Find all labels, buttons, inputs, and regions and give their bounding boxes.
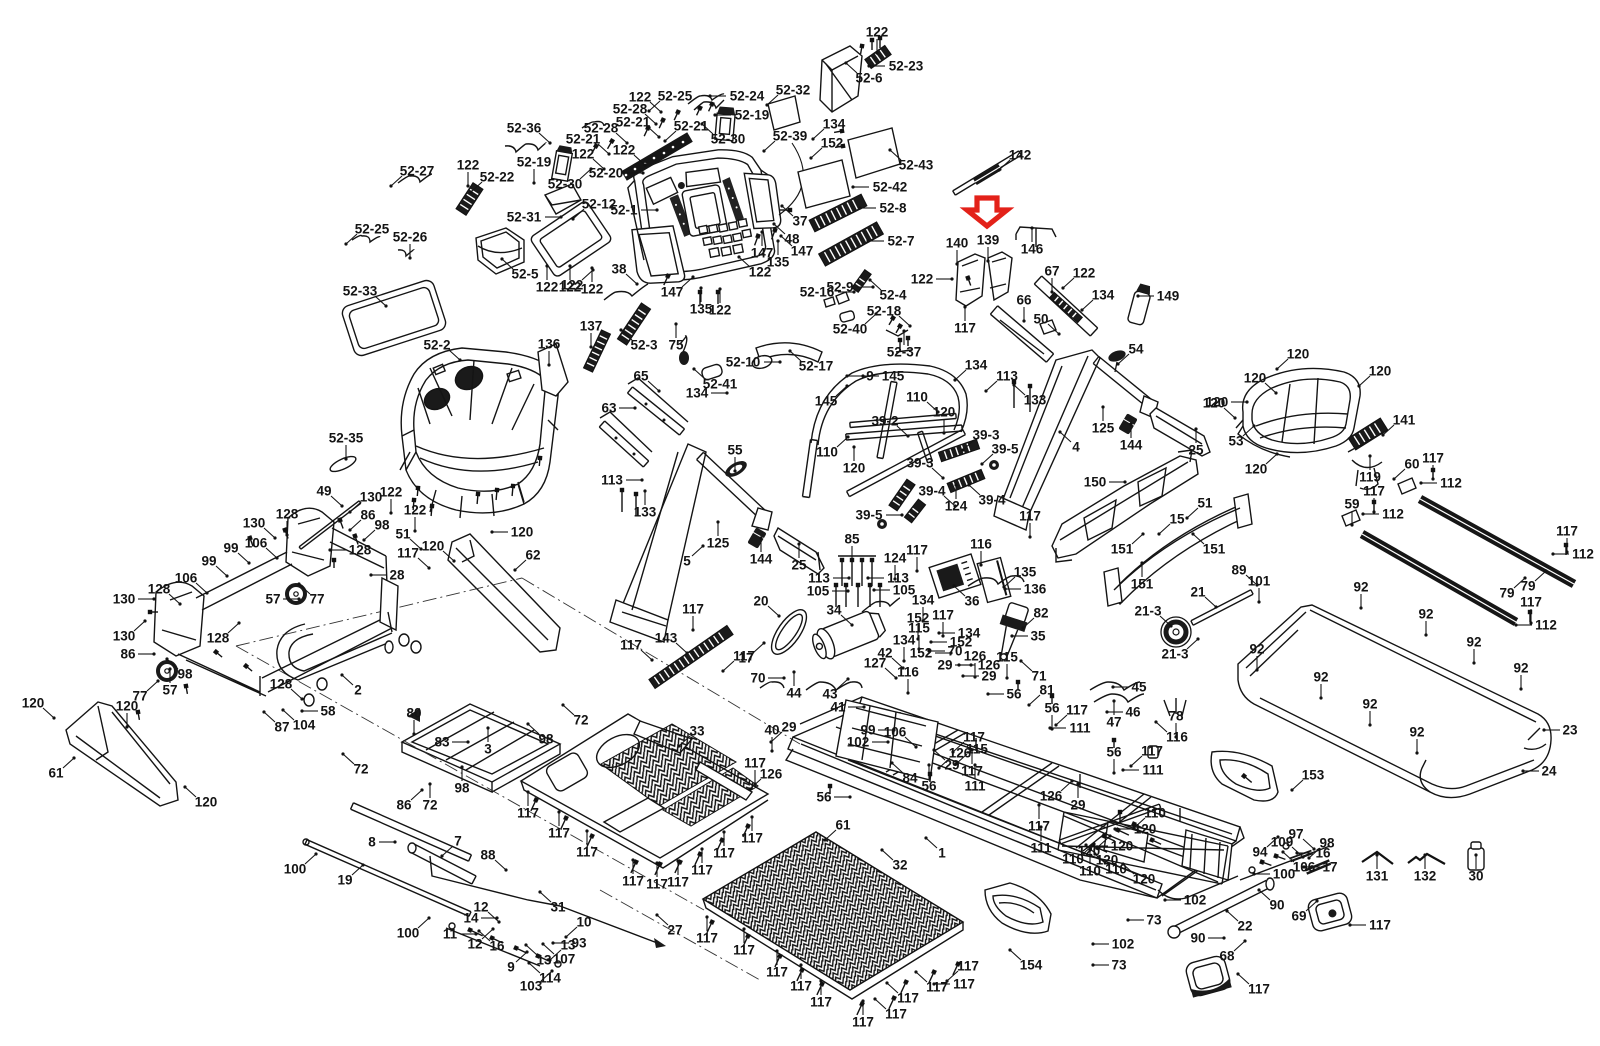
- svg-text:147: 147: [661, 285, 684, 300]
- svg-text:131: 131: [1366, 869, 1389, 884]
- svg-text:69: 69: [1291, 909, 1306, 924]
- svg-text:117: 117: [1363, 484, 1385, 499]
- svg-text:52-26: 52-26: [393, 230, 428, 245]
- svg-text:92: 92: [1513, 661, 1528, 676]
- svg-text:40: 40: [764, 723, 779, 738]
- svg-text:52-42: 52-42: [873, 180, 908, 195]
- svg-text:39-3: 39-3: [906, 456, 934, 471]
- svg-text:149: 149: [1157, 289, 1180, 304]
- svg-text:31: 31: [550, 900, 566, 915]
- svg-text:52-24: 52-24: [730, 89, 765, 104]
- svg-text:97: 97: [1288, 827, 1303, 842]
- svg-text:117: 117: [852, 1015, 874, 1030]
- svg-text:87: 87: [274, 720, 289, 735]
- svg-text:120: 120: [22, 696, 45, 711]
- svg-text:117: 117: [622, 874, 644, 889]
- svg-text:66: 66: [1016, 293, 1032, 308]
- svg-text:52-27: 52-27: [400, 164, 435, 179]
- svg-text:62: 62: [525, 548, 540, 563]
- svg-text:117: 117: [932, 608, 954, 623]
- svg-text:98: 98: [538, 732, 554, 747]
- svg-text:112: 112: [1382, 507, 1404, 522]
- svg-text:130: 130: [113, 629, 136, 644]
- svg-text:82: 82: [1033, 606, 1048, 621]
- svg-text:39-5: 39-5: [991, 442, 1019, 457]
- svg-text:117: 117: [1019, 509, 1041, 524]
- svg-text:117: 117: [667, 875, 689, 890]
- svg-text:120: 120: [1287, 347, 1310, 362]
- svg-text:117: 117: [1369, 918, 1391, 933]
- svg-text:122: 122: [866, 25, 889, 40]
- svg-text:111: 111: [1069, 721, 1091, 736]
- svg-text:23: 23: [1562, 723, 1578, 738]
- svg-text:122: 122: [457, 158, 480, 173]
- svg-text:135: 135: [1014, 565, 1037, 580]
- svg-text:94: 94: [1252, 845, 1268, 860]
- svg-text:71: 71: [1031, 669, 1047, 684]
- svg-text:30: 30: [1468, 869, 1483, 884]
- svg-text:117: 117: [713, 846, 735, 861]
- svg-text:92: 92: [1353, 580, 1368, 595]
- svg-text:137: 137: [580, 319, 603, 334]
- svg-text:39-2: 39-2: [871, 414, 898, 429]
- svg-text:130: 130: [243, 516, 266, 531]
- svg-text:52-43: 52-43: [899, 158, 934, 173]
- svg-text:63: 63: [601, 401, 617, 416]
- svg-text:147: 147: [791, 244, 814, 259]
- svg-text:116: 116: [970, 537, 992, 552]
- svg-text:103: 103: [520, 979, 543, 994]
- svg-text:106: 106: [884, 725, 907, 740]
- svg-text:122: 122: [629, 90, 652, 105]
- svg-text:73: 73: [1111, 958, 1127, 973]
- svg-text:146: 146: [1021, 242, 1044, 257]
- svg-text:37: 37: [792, 214, 807, 229]
- svg-text:84: 84: [902, 771, 918, 786]
- svg-text:99: 99: [201, 554, 216, 569]
- svg-text:134: 134: [1092, 288, 1115, 303]
- svg-text:100: 100: [284, 862, 307, 877]
- svg-text:56: 56: [1044, 701, 1060, 716]
- svg-text:111: 111: [1142, 763, 1164, 778]
- svg-text:122: 122: [561, 278, 584, 293]
- svg-text:110: 110: [906, 390, 928, 405]
- svg-text:133: 133: [634, 505, 657, 520]
- svg-text:52-18: 52-18: [867, 304, 902, 319]
- svg-text:21: 21: [1190, 585, 1206, 600]
- svg-text:29: 29: [981, 669, 996, 684]
- svg-text:86: 86: [396, 798, 412, 813]
- svg-text:134: 134: [965, 358, 988, 373]
- svg-text:150: 150: [1084, 475, 1107, 490]
- svg-text:44: 44: [786, 686, 802, 701]
- svg-text:24: 24: [1541, 764, 1557, 779]
- svg-text:117: 117: [766, 965, 788, 980]
- svg-text:92: 92: [1313, 670, 1328, 685]
- svg-text:52-40: 52-40: [833, 322, 868, 337]
- svg-text:67: 67: [1044, 264, 1059, 279]
- svg-text:101: 101: [1248, 574, 1271, 589]
- svg-text:52-36: 52-36: [507, 121, 542, 136]
- svg-text:98: 98: [454, 781, 470, 796]
- svg-text:110: 110: [816, 445, 838, 460]
- svg-text:14: 14: [463, 911, 479, 926]
- svg-text:153: 153: [1302, 768, 1325, 783]
- svg-text:117: 117: [810, 995, 832, 1010]
- svg-text:34: 34: [826, 603, 842, 618]
- svg-text:113: 113: [601, 473, 623, 488]
- svg-text:145: 145: [815, 394, 838, 409]
- svg-text:104: 104: [293, 718, 316, 733]
- svg-text:117: 117: [953, 977, 975, 992]
- svg-text:122: 122: [613, 143, 636, 158]
- svg-text:3: 3: [484, 742, 492, 757]
- svg-text:116: 116: [1166, 730, 1188, 745]
- svg-text:132: 132: [1414, 869, 1437, 884]
- svg-text:134: 134: [686, 386, 709, 401]
- svg-text:122: 122: [911, 272, 934, 287]
- svg-text:59: 59: [1344, 497, 1359, 512]
- svg-text:120: 120: [1133, 872, 1156, 887]
- svg-text:77: 77: [309, 592, 324, 607]
- svg-text:117: 117: [397, 546, 419, 561]
- svg-text:117: 117: [548, 826, 570, 841]
- svg-text:117: 117: [517, 806, 539, 821]
- svg-text:124: 124: [945, 499, 968, 514]
- svg-text:90: 90: [1269, 898, 1284, 913]
- svg-text:120: 120: [1245, 462, 1268, 477]
- svg-text:120: 120: [1244, 371, 1267, 386]
- svg-text:111: 111: [1030, 841, 1052, 856]
- svg-text:51: 51: [1197, 496, 1213, 511]
- svg-text:22: 22: [1237, 919, 1252, 934]
- svg-text:107: 107: [553, 952, 576, 967]
- svg-text:52-35: 52-35: [329, 431, 364, 446]
- svg-text:117: 117: [1066, 703, 1088, 718]
- svg-text:39-4: 39-4: [918, 484, 946, 499]
- svg-text:52-4: 52-4: [879, 288, 907, 303]
- svg-text:29: 29: [781, 720, 796, 735]
- svg-text:112: 112: [1440, 476, 1462, 491]
- svg-text:117: 117: [682, 602, 704, 617]
- svg-text:27: 27: [667, 923, 682, 938]
- svg-text:120: 120: [1134, 822, 1157, 837]
- svg-text:52-25: 52-25: [658, 89, 693, 104]
- svg-text:106: 106: [1293, 860, 1316, 875]
- svg-text:32: 32: [892, 858, 907, 873]
- svg-text:86: 86: [120, 647, 136, 662]
- svg-text:41: 41: [830, 700, 846, 715]
- svg-text:92: 92: [1362, 697, 1377, 712]
- svg-text:79: 79: [1520, 579, 1535, 594]
- svg-text:90: 90: [1190, 931, 1205, 946]
- svg-text:50: 50: [1033, 312, 1048, 327]
- svg-text:61: 61: [835, 818, 851, 833]
- svg-text:116: 116: [897, 665, 919, 680]
- svg-text:151: 151: [1111, 542, 1134, 557]
- svg-text:117: 117: [741, 831, 763, 846]
- svg-text:52-30: 52-30: [711, 132, 746, 147]
- svg-text:72: 72: [573, 713, 588, 728]
- svg-text:117: 117: [957, 959, 979, 974]
- svg-text:139: 139: [977, 233, 1000, 248]
- svg-text:145: 145: [882, 369, 905, 384]
- svg-text:110: 110: [1144, 806, 1166, 821]
- svg-text:122: 122: [572, 147, 595, 162]
- svg-text:20: 20: [753, 594, 768, 609]
- svg-text:120: 120: [1111, 839, 1134, 854]
- svg-text:61: 61: [48, 766, 64, 781]
- svg-text:52-8: 52-8: [879, 201, 907, 216]
- svg-text:52-2: 52-2: [423, 338, 450, 353]
- svg-text:5: 5: [683, 554, 691, 569]
- svg-text:120: 120: [1206, 395, 1229, 410]
- svg-text:102: 102: [847, 735, 870, 750]
- svg-text:25: 25: [791, 558, 807, 573]
- svg-text:1: 1: [938, 846, 946, 861]
- svg-text:56: 56: [921, 779, 937, 794]
- svg-text:117: 117: [885, 1007, 907, 1022]
- svg-text:78: 78: [1168, 709, 1184, 724]
- svg-text:52-31: 52-31: [507, 210, 542, 225]
- svg-text:136: 136: [1024, 582, 1047, 597]
- svg-text:117: 117: [620, 638, 642, 653]
- svg-text:45: 45: [1131, 680, 1147, 695]
- svg-text:117: 117: [961, 764, 983, 779]
- svg-text:85: 85: [844, 532, 860, 547]
- svg-text:73: 73: [1146, 913, 1162, 928]
- svg-text:16: 16: [489, 939, 505, 954]
- svg-text:16: 16: [1315, 846, 1331, 861]
- svg-text:110: 110: [1079, 864, 1101, 879]
- svg-text:124: 124: [884, 551, 907, 566]
- svg-text:117: 117: [790, 979, 812, 994]
- svg-text:117: 117: [691, 863, 713, 878]
- svg-text:55: 55: [727, 443, 743, 458]
- svg-text:52-39: 52-39: [773, 129, 808, 144]
- svg-text:120: 120: [1369, 364, 1392, 379]
- svg-text:112: 112: [1535, 618, 1557, 633]
- svg-text:120: 120: [422, 539, 445, 554]
- svg-text:15: 15: [1169, 512, 1185, 527]
- svg-text:122: 122: [536, 280, 559, 295]
- svg-text:79: 79: [1499, 586, 1514, 601]
- svg-text:36: 36: [964, 594, 980, 609]
- svg-text:120: 120: [843, 461, 866, 476]
- svg-text:10: 10: [576, 915, 591, 930]
- svg-text:122: 122: [404, 503, 427, 518]
- svg-text:52-20: 52-20: [589, 166, 624, 181]
- svg-text:70: 70: [750, 671, 765, 686]
- svg-text:117: 117: [733, 943, 755, 958]
- svg-text:151: 151: [1131, 577, 1154, 592]
- svg-text:120: 120: [511, 525, 534, 540]
- svg-text:120: 120: [933, 405, 956, 420]
- svg-text:128: 128: [207, 631, 230, 646]
- svg-text:38: 38: [611, 262, 627, 277]
- svg-text:52-30: 52-30: [548, 177, 583, 192]
- svg-text:53: 53: [1228, 434, 1244, 449]
- svg-text:65: 65: [633, 369, 649, 384]
- svg-text:25: 25: [1188, 443, 1204, 458]
- svg-text:29: 29: [937, 658, 952, 673]
- svg-text:39-3: 39-3: [972, 428, 1000, 443]
- svg-text:52-28: 52-28: [584, 121, 619, 136]
- svg-text:52-23: 52-23: [889, 59, 924, 74]
- svg-text:134: 134: [912, 593, 935, 608]
- svg-text:125: 125: [707, 536, 730, 551]
- svg-text:125: 125: [1092, 421, 1115, 436]
- svg-text:98: 98: [177, 667, 193, 682]
- svg-text:51: 51: [395, 527, 411, 542]
- svg-text:102: 102: [1112, 937, 1135, 952]
- svg-text:52-32: 52-32: [776, 83, 811, 98]
- svg-text:128: 128: [349, 543, 372, 558]
- svg-text:52-21: 52-21: [616, 115, 651, 130]
- svg-text:2: 2: [354, 683, 362, 698]
- svg-text:120: 120: [195, 795, 218, 810]
- svg-text:17: 17: [1322, 860, 1337, 875]
- svg-text:122: 122: [380, 485, 403, 500]
- svg-text:122: 122: [1073, 266, 1096, 281]
- svg-text:92: 92: [1418, 607, 1433, 622]
- svg-text:29: 29: [1070, 798, 1085, 813]
- svg-text:117: 117: [926, 980, 948, 995]
- svg-text:52-19: 52-19: [735, 108, 770, 123]
- svg-text:93: 93: [571, 936, 587, 951]
- svg-text:46: 46: [1125, 705, 1141, 720]
- svg-text:57: 57: [162, 683, 177, 698]
- svg-text:57: 57: [265, 592, 280, 607]
- svg-text:106: 106: [245, 536, 268, 551]
- svg-text:133: 133: [1024, 393, 1047, 408]
- svg-text:49: 49: [316, 484, 331, 499]
- svg-text:117: 117: [1141, 744, 1163, 759]
- svg-text:83: 83: [434, 735, 450, 750]
- svg-text:52-37: 52-37: [887, 345, 922, 360]
- svg-text:126: 126: [1040, 789, 1063, 804]
- svg-text:117: 117: [906, 543, 928, 558]
- svg-text:99: 99: [223, 541, 238, 556]
- svg-text:122: 122: [749, 265, 772, 280]
- svg-text:89: 89: [1231, 563, 1246, 578]
- svg-text:7: 7: [454, 834, 462, 849]
- svg-text:117: 117: [1556, 524, 1578, 539]
- svg-text:52-33: 52-33: [343, 284, 378, 299]
- svg-text:143: 143: [655, 631, 678, 646]
- svg-text:117: 117: [696, 931, 718, 946]
- svg-text:47: 47: [1106, 715, 1121, 730]
- svg-text:52-6: 52-6: [855, 71, 883, 86]
- svg-text:134: 134: [823, 117, 846, 132]
- svg-text:119: 119: [1359, 470, 1381, 485]
- svg-text:112: 112: [1572, 547, 1594, 562]
- svg-text:52-1: 52-1: [610, 203, 638, 218]
- svg-text:19: 19: [337, 873, 352, 888]
- svg-text:117: 117: [1248, 982, 1270, 997]
- svg-text:115: 115: [966, 742, 988, 757]
- svg-text:142: 142: [1009, 148, 1032, 163]
- svg-text:28: 28: [389, 568, 405, 583]
- svg-text:117: 117: [733, 649, 755, 664]
- svg-text:56: 56: [816, 790, 832, 805]
- svg-text:127: 127: [864, 656, 887, 671]
- svg-text:58: 58: [320, 704, 336, 719]
- svg-text:92: 92: [1249, 642, 1264, 657]
- svg-text:52-17: 52-17: [799, 359, 834, 374]
- svg-text:141: 141: [1393, 413, 1416, 428]
- svg-text:52-25: 52-25: [355, 222, 390, 237]
- svg-text:128: 128: [148, 582, 171, 597]
- svg-text:88: 88: [480, 848, 496, 863]
- svg-text:144: 144: [750, 552, 773, 567]
- svg-text:144: 144: [1120, 438, 1143, 453]
- svg-text:11: 11: [443, 927, 458, 942]
- svg-text:9: 9: [507, 960, 515, 975]
- svg-text:117: 117: [1520, 595, 1542, 610]
- svg-text:117: 117: [1028, 819, 1050, 834]
- svg-text:100: 100: [397, 926, 420, 941]
- svg-text:120: 120: [116, 699, 139, 714]
- svg-text:72: 72: [353, 762, 368, 777]
- svg-text:128: 128: [276, 507, 299, 522]
- svg-text:117: 117: [897, 991, 919, 1006]
- svg-text:75: 75: [668, 338, 684, 353]
- svg-text:122: 122: [709, 303, 732, 318]
- svg-text:12: 12: [467, 937, 482, 952]
- svg-text:106: 106: [175, 571, 198, 586]
- svg-text:113: 113: [996, 369, 1018, 384]
- svg-text:154: 154: [1020, 958, 1043, 973]
- svg-text:72: 72: [422, 798, 437, 813]
- svg-text:68: 68: [1219, 949, 1235, 964]
- svg-text:35: 35: [1030, 629, 1046, 644]
- svg-text:130: 130: [113, 592, 136, 607]
- svg-text:56: 56: [1006, 687, 1022, 702]
- svg-text:140: 140: [946, 236, 969, 251]
- svg-text:122: 122: [581, 282, 604, 297]
- svg-text:52-16: 52-16: [800, 285, 835, 300]
- svg-text:117: 117: [954, 321, 976, 336]
- svg-text:56: 56: [1106, 745, 1122, 760]
- svg-text:52-3: 52-3: [630, 338, 658, 353]
- svg-text:80: 80: [406, 706, 421, 721]
- svg-text:52-19: 52-19: [517, 155, 552, 170]
- svg-text:102: 102: [1184, 893, 1207, 908]
- svg-text:39-5: 39-5: [855, 508, 883, 523]
- svg-text:21-3: 21-3: [1134, 604, 1162, 619]
- svg-text:151: 151: [1203, 542, 1226, 557]
- svg-text:8: 8: [368, 835, 376, 850]
- svg-text:81: 81: [1039, 683, 1055, 698]
- svg-text:136: 136: [538, 337, 561, 352]
- svg-text:128: 128: [270, 677, 293, 692]
- svg-text:54: 54: [1128, 342, 1144, 357]
- svg-text:105: 105: [807, 584, 830, 599]
- svg-text:70: 70: [947, 644, 962, 659]
- svg-text:117: 117: [646, 877, 668, 892]
- svg-text:92: 92: [1466, 635, 1481, 650]
- svg-text:60: 60: [1404, 457, 1419, 472]
- svg-text:92: 92: [1409, 725, 1424, 740]
- svg-text:98: 98: [374, 518, 390, 533]
- svg-text:126: 126: [760, 767, 783, 782]
- svg-text:52-10: 52-10: [726, 355, 761, 370]
- svg-text:39-4: 39-4: [978, 493, 1006, 508]
- svg-text:115: 115: [996, 650, 1018, 665]
- svg-text:52-22: 52-22: [480, 170, 515, 185]
- svg-text:4: 4: [1072, 440, 1080, 455]
